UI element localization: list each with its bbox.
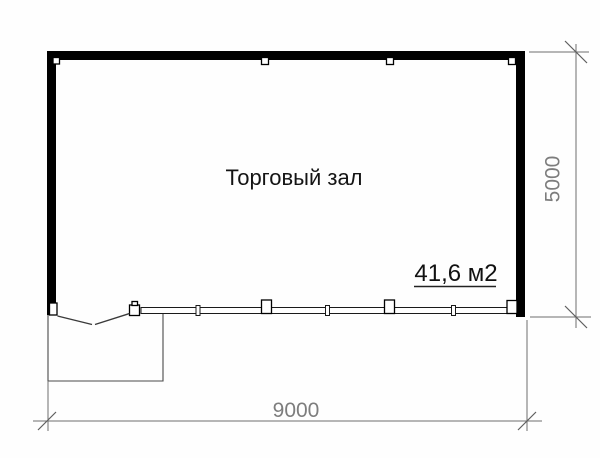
door-leaf — [58, 316, 93, 325]
entrance-door — [50, 302, 140, 325]
column-post — [507, 301, 517, 314]
column-post — [385, 300, 395, 314]
height-dimension-label: 5000 — [542, 156, 565, 203]
height-dimension: 5000 — [529, 41, 591, 328]
column-post — [262, 300, 272, 314]
column-post — [53, 58, 60, 65]
door-post-cap — [132, 302, 138, 306]
door-leaf — [95, 314, 130, 325]
window-mullion — [452, 306, 456, 316]
window-mullion — [196, 306, 200, 316]
floor-plan: 9000 5000 Торговый зал 41,6 м2 — [0, 0, 600, 458]
area-annotation: 41,6 м2 — [414, 260, 498, 287]
porch-outline — [48, 314, 163, 381]
column-post — [509, 58, 516, 65]
room-label: Торговый зал — [225, 165, 362, 190]
left-wall — [47, 51, 56, 315]
right-wall — [516, 51, 525, 317]
area-label: 41,6 м2 — [414, 260, 497, 287]
column-post — [262, 58, 269, 65]
width-dimension: 9000 — [33, 320, 542, 431]
width-dimension-label: 9000 — [273, 399, 320, 422]
floor-plan-canvas: 9000 5000 Торговый зал 41,6 м2 — [0, 0, 600, 458]
door-post — [130, 305, 140, 316]
door-jamb — [50, 303, 58, 315]
column-post — [387, 58, 394, 65]
window-mullion — [326, 306, 330, 316]
window-band — [141, 300, 517, 316]
top-wall — [47, 51, 525, 60]
